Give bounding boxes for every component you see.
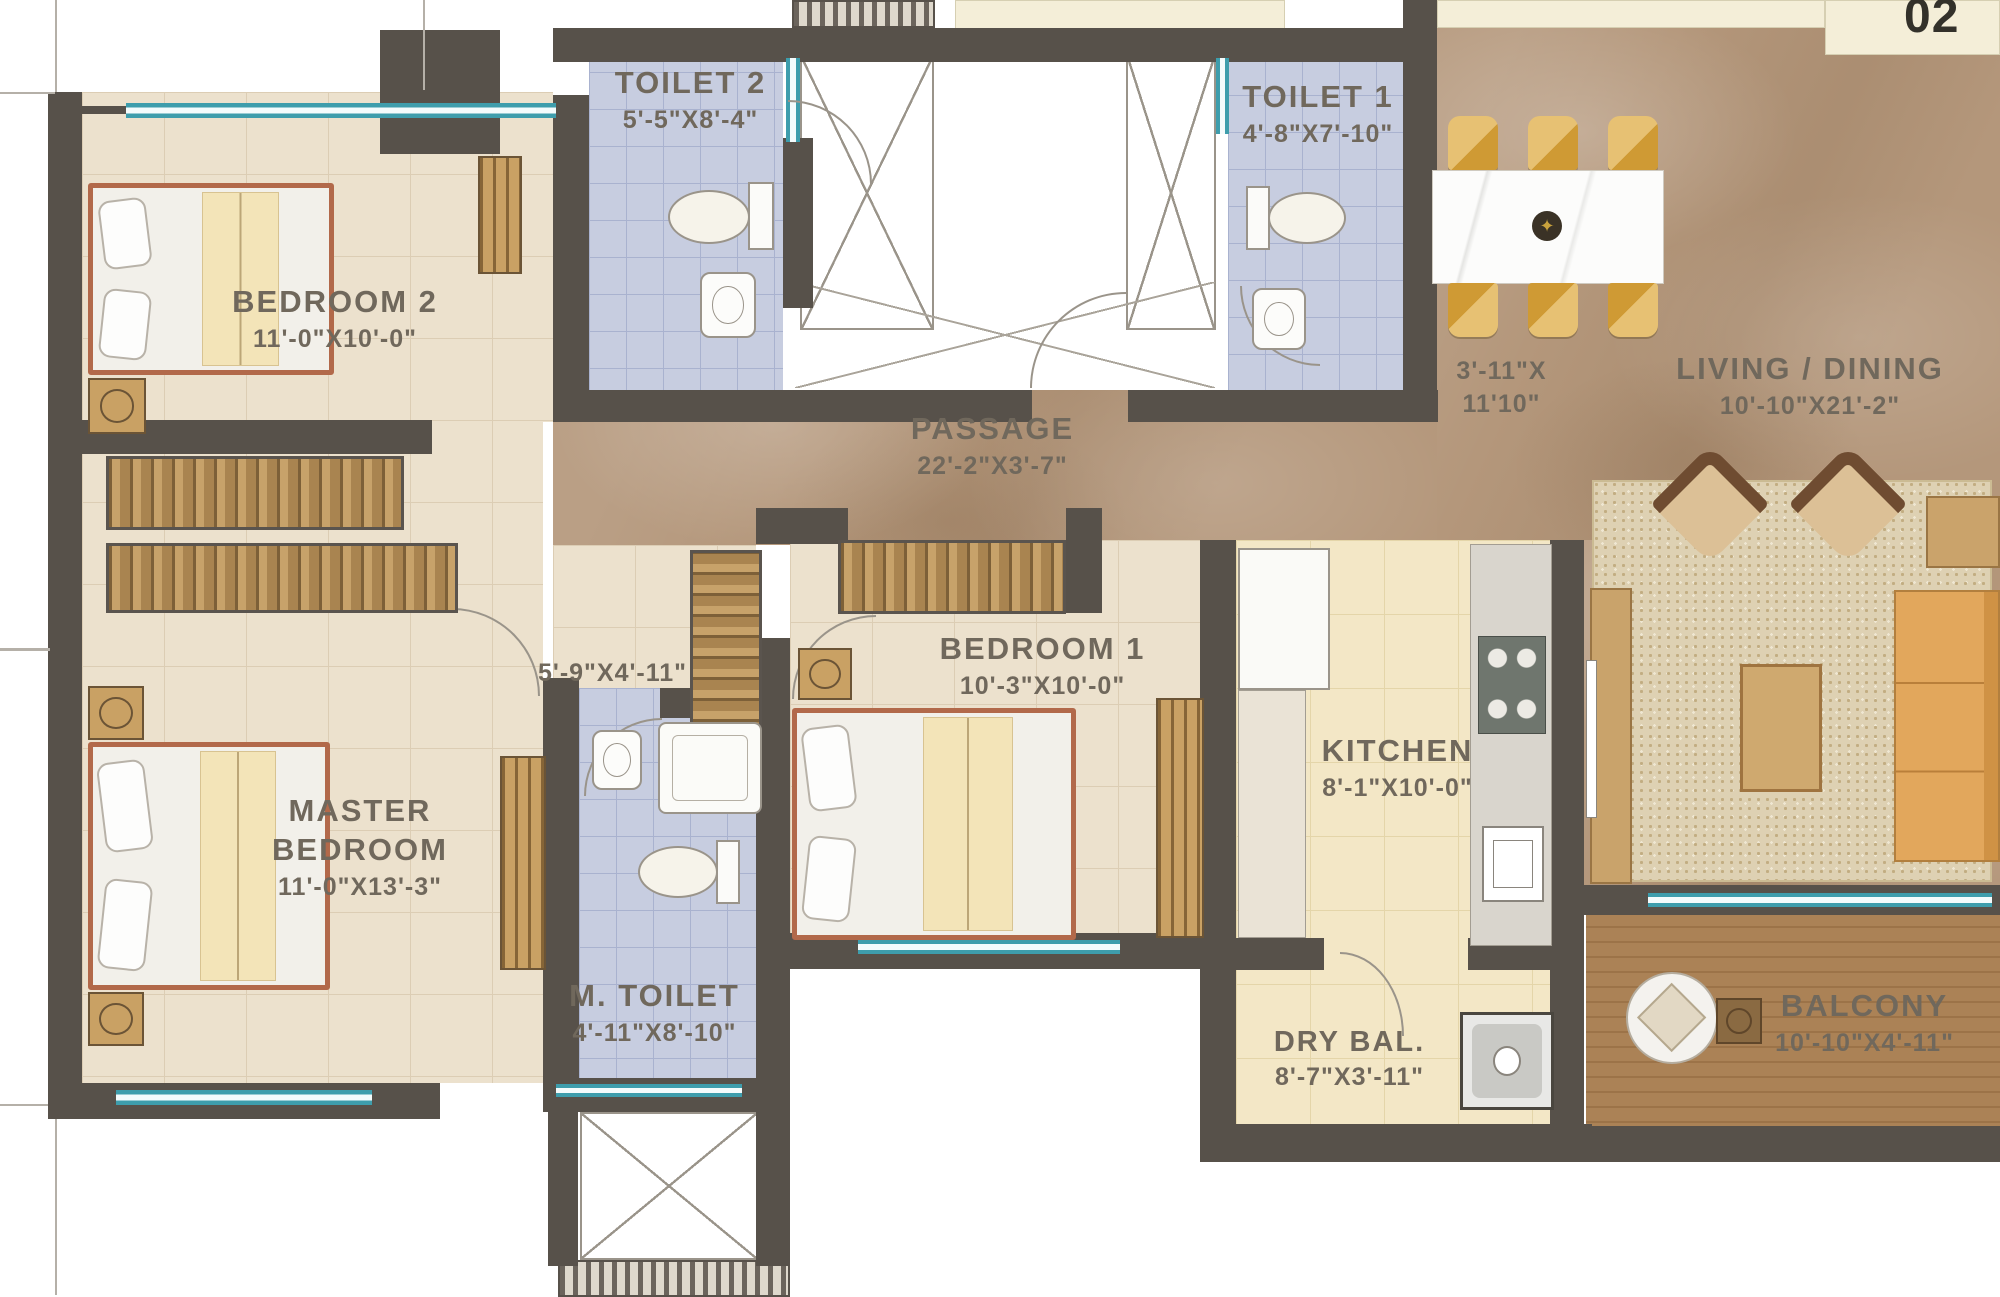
wall-master-left <box>48 454 82 1106</box>
ref-line <box>0 648 50 651</box>
room-name: TOILET 2 <box>588 64 793 103</box>
nightstand-icon <box>798 648 852 700</box>
nightstand-icon <box>88 686 144 740</box>
balcony-chair-icon <box>1626 972 1718 1064</box>
living-dining-label: LIVING / DINING 10'-10"X21'-2" <box>1640 350 1980 422</box>
foyer-wardrobe-1 <box>106 456 404 530</box>
master-bedroom-label: MASTER BEDROOM 11'-0"X13'-3" <box>230 792 490 903</box>
sofa <box>1894 590 2000 862</box>
lobby-cross-mark <box>795 282 1215 388</box>
nightstand-icon <box>88 992 144 1046</box>
bedroom1-wardrobe <box>1156 698 1204 938</box>
room-name: BEDROOM <box>230 831 490 870</box>
nightstand-icon <box>88 378 146 434</box>
wall-bedroom1-top-left <box>756 508 848 544</box>
wc-tank-icon <box>748 182 774 250</box>
dining-chair-icon <box>1608 283 1658 337</box>
room-dims: 11'-0"X10'-0" <box>175 324 495 355</box>
wall-bedroom1-kitchen <box>1200 540 1236 970</box>
room-name: TOILET 1 <box>1218 78 1418 117</box>
pillow-icon <box>801 835 858 924</box>
side-table <box>1926 496 2000 568</box>
mtoilet-window <box>556 1084 742 1097</box>
pillow-icon <box>800 724 858 814</box>
wall-shaft-left <box>548 1106 578 1266</box>
foyer-cabinet <box>690 550 762 746</box>
room-dims: 4'-11"X8'-10" <box>552 1018 757 1049</box>
bedroom1-window <box>858 940 1120 954</box>
room-dims: 8'-1"X10'-0" <box>1290 773 1505 804</box>
shower-icon <box>658 722 762 814</box>
dining-chair-icon <box>1528 283 1578 337</box>
washbasin-icon <box>700 272 756 338</box>
washing-machine-drum <box>1472 1024 1542 1098</box>
wc-tank-icon <box>1246 186 1270 250</box>
master-window <box>116 1090 372 1105</box>
washing-machine-icon <box>1460 1012 1554 1110</box>
unit-number: 02 <box>1904 0 1959 44</box>
foyer-dims-label: 5'-9"X4'-11" <box>505 658 720 689</box>
m-toilet-label: M. TOILET 4'-11"X8'-10" <box>552 977 757 1049</box>
wall-kitchen-right <box>1550 540 1584 1160</box>
kitchen-label: KITCHEN 8'-1"X10'-0" <box>1290 732 1505 804</box>
bedroom1-label: BEDROOM 1 10'-3"X10'-0" <box>905 630 1180 702</box>
unit-number-box: 02 <box>1825 0 2000 55</box>
room-name: BEDROOM 1 <box>905 630 1180 669</box>
wall-balcony-bottom <box>1584 1126 2000 1162</box>
bedroom2-wardrobe <box>478 156 522 274</box>
lower-shaft <box>580 1112 758 1260</box>
room-dims: 4'-8"X7'-10" <box>1218 119 1418 150</box>
wc-bowl-icon <box>1268 192 1346 244</box>
pillow-icon <box>97 196 153 270</box>
ref-line <box>0 92 55 94</box>
room-dims: 10'-10"X21'-2" <box>1640 391 1980 422</box>
dining-chair-icon <box>1448 283 1498 337</box>
bedroom2-window <box>126 103 556 118</box>
dining-chair-icon <box>1608 116 1658 170</box>
wall-top-main <box>553 28 1437 62</box>
wall-passage-top-right <box>1128 390 1438 422</box>
tv-icon <box>1586 660 1597 818</box>
washbasin-icon <box>592 730 642 790</box>
master-wardrobe <box>500 756 546 970</box>
dry-balcony-label: DRY BAL. 8'-7"X3'-11" <box>1252 1024 1447 1094</box>
duct-hatch-top <box>792 0 935 28</box>
room-dims: 22'-2"X3'-7" <box>880 451 1105 482</box>
pillow-icon <box>98 288 153 362</box>
table-centerpiece-icon: ✦ <box>1532 211 1562 241</box>
room-dims: 5'-5"X8'-4" <box>588 105 793 136</box>
toilet2-label: TOILET 2 5'-5"X8'-4" <box>588 64 793 136</box>
coffee-table <box>1740 664 1822 792</box>
wall-bedroom2-top-block <box>380 30 500 154</box>
foyer-wardrobe-2 <box>106 543 458 613</box>
balcony-window <box>1648 893 1992 907</box>
sink-icon <box>1482 826 1544 902</box>
ref-line <box>55 1119 57 1295</box>
room-dims: 11'10" <box>1434 389 1569 420</box>
dining-chair-icon <box>1528 116 1578 170</box>
room-dims: 11'-0"X13'-3" <box>230 872 490 903</box>
wc-tank-icon <box>716 840 740 904</box>
room-dims: 10'-10"X4'-11" <box>1752 1028 1977 1059</box>
room-dims: 5'-9"X4'-11" <box>505 658 720 689</box>
room-name: KITCHEN <box>1290 732 1505 771</box>
room-name: PASSAGE <box>880 410 1105 449</box>
kitchen-counter-left <box>1238 690 1306 938</box>
adjacent-unit-strip-2 <box>1437 0 1825 28</box>
room-name: MASTER <box>230 792 490 831</box>
wall-drybal-bottom <box>1200 1124 1592 1162</box>
bedroom2-label: BEDROOM 2 11'-0"X10'-0" <box>175 283 495 355</box>
room-dims: 8'-7"X3'-11" <box>1252 1062 1447 1093</box>
passage-label: PASSAGE 22'-2"X3'-7" <box>880 410 1105 482</box>
wall-bedroom1-top-right <box>1066 508 1102 613</box>
dining-chair-icon <box>1448 116 1498 170</box>
ref-line <box>423 0 425 90</box>
ref-line <box>55 0 57 92</box>
wall-bedroom2-toilet2 <box>553 95 589 405</box>
fridge-icon <box>1238 548 1330 690</box>
bed-icon <box>792 708 1076 940</box>
floor-plan: 02 <box>0 0 2000 1297</box>
bedroom1-wardrobe-hatch <box>838 540 1066 614</box>
washbasin-icon <box>1252 288 1306 350</box>
room-name: BALCONY <box>1752 987 1977 1026</box>
room-name: BEDROOM 2 <box>175 283 495 322</box>
room-dims: 10'-3"X10'-0" <box>905 671 1180 702</box>
hob-icon <box>1478 636 1546 734</box>
room-name: LIVING / DINING <box>1640 350 1980 389</box>
room-name: M. TOILET <box>552 977 757 1016</box>
wc-bowl-icon <box>668 190 750 244</box>
ref-line <box>0 1104 48 1106</box>
wc-bowl-icon <box>638 846 718 898</box>
wall-shaft-right <box>756 1090 790 1266</box>
dining-area-dims-label: 3'-11"X 11'10" <box>1434 356 1569 421</box>
pillow-icon <box>96 878 153 973</box>
room-name: DRY BAL. <box>1252 1024 1447 1060</box>
pillow-icon <box>96 759 155 855</box>
blanket-icon <box>923 717 1013 931</box>
wall-bedroom2-left <box>48 92 82 430</box>
wall-kitchen-drybal-left <box>1236 938 1324 970</box>
balcony-label: BALCONY 10'-10"X4'-11" <box>1752 987 1977 1059</box>
toilet1-label: TOILET 1 4'-8"X7'-10" <box>1218 78 1418 150</box>
room-dims: 3'-11"X <box>1434 356 1569 387</box>
